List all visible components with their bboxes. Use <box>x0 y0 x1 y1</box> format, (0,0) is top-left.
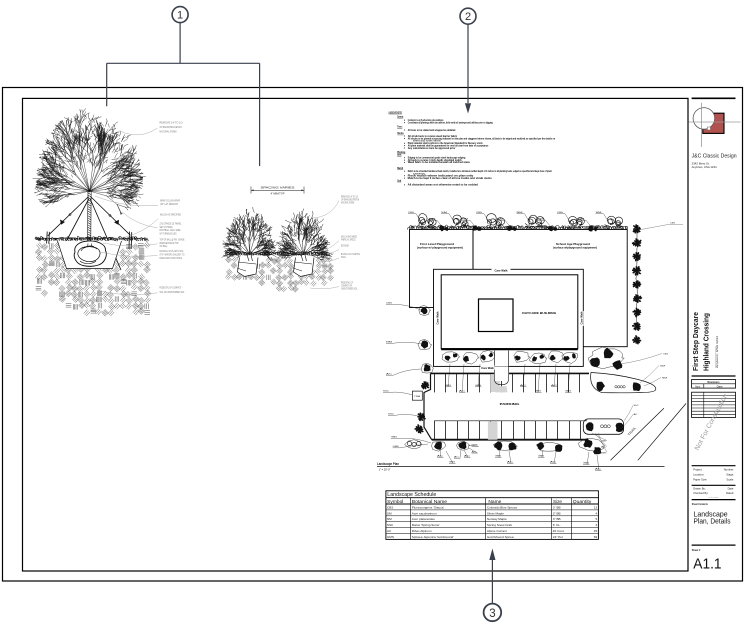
svg-text:6' CL.: 6' CL. <box>553 523 561 527</box>
svg-text:5: 5 <box>595 517 597 521</box>
svg-text:#4 Cont.: #4 Cont. <box>553 529 565 533</box>
svg-text:REMOVE 1/4 TO 1/3: REMOVE 1/4 TO 1/3 <box>160 122 184 125</box>
svg-text:Malus 'Spring Snow': Malus 'Spring Snow' <box>412 523 440 527</box>
svg-text:Name: Name <box>488 499 502 504</box>
svg-text:3: 3 <box>595 523 597 527</box>
svg-text:Mulch to be shredded hardwood: Mulch to be shredded hardwood bark mulch… <box>408 170 552 173</box>
svg-text:Spring Snow Crab: Spring Snow Crab <box>487 523 512 527</box>
svg-text:NM: NM <box>578 219 584 221</box>
svg-text:SOIL OR UNDISTURBED SOIL: SOIL OR UNDISTURBED SOIL <box>160 291 185 294</box>
svg-text:Care Walk: Care Walk <box>580 311 584 325</box>
svg-text:SPACING VARIES: SPACING VARIES <box>261 186 295 190</box>
svg-text:Mulch to be kept 3 inches clea: Mulch to be kept 3 inches clear of all t… <box>408 177 493 180</box>
svg-text:Plan, Details: Plan, Details <box>694 517 731 526</box>
svg-text:Mulch: Mulch <box>397 166 403 170</box>
svg-text:TRA: TRA <box>414 395 421 398</box>
svg-text:Revisions: Revisions <box>708 380 720 384</box>
svg-text:Care Walk: Care Walk <box>495 270 509 273</box>
svg-text:SM: SM <box>660 366 665 368</box>
svg-text:Care Walk: Care Walk <box>436 311 440 325</box>
svg-text:Symbol: Symbol <box>387 499 403 504</box>
svg-text:GMS: GMS <box>475 385 482 387</box>
svg-text:Acer saccharinum: Acer saccharinum <box>412 511 437 515</box>
svg-text:Silver Maple: Silver Maple <box>487 511 504 515</box>
svg-text:CBS: CBS <box>538 219 545 221</box>
svg-text:Location:: Location: <box>693 473 704 477</box>
svg-text:School Age Playground: School Age Playground <box>556 243 591 246</box>
svg-text:AC: AC <box>550 461 557 464</box>
svg-text:69: 69 <box>594 535 598 539</box>
svg-text:LANDSCAPE NOTES: LANDSCAPE NOTES <box>389 110 402 114</box>
svg-text:Checked By:: Checked By: <box>693 491 708 495</box>
svg-text:NATURAL FORM: NATURAL FORM <box>341 202 354 205</box>
svg-text:Project:: Project: <box>693 468 702 472</box>
svg-text:Paper Size:: Paper Size: <box>693 477 707 481</box>
svg-text:(30° LAT. BRANCH: (30° LAT. BRANCH <box>160 203 178 206</box>
svg-text:3: 3 <box>489 608 495 620</box>
svg-text:Spiraea Japonica 'Goldmound': Spiraea Japonica 'Goldmound' <box>412 535 454 539</box>
svg-text:J&C Classic Design: J&C Classic Design <box>692 154 737 160</box>
svg-text:Landscape Schedule: Landscape Schedule <box>387 492 436 498</box>
svg-text:SOIL: SOIL <box>341 256 347 259</box>
svg-text:All disturbed areas not otherw: All disturbed areas not otherwise noted … <box>408 184 479 187</box>
svg-text:Highland Crossing: Highland Crossing <box>702 313 711 371</box>
svg-text:AC: AC <box>472 450 478 453</box>
svg-text:Weed fabric to be installed be: Weed fabric to be installed beneath all … <box>408 161 471 164</box>
svg-text:GMS: GMS <box>445 385 452 387</box>
svg-text:AC: AC <box>464 455 471 458</box>
svg-text:GMS: GMS <box>495 456 502 458</box>
svg-text:W/ TURNBUCKLES: W/ TURNBUCKLES <box>160 232 177 235</box>
svg-text:Colorado Blue Spruce: Colorado Blue Spruce <box>487 505 518 509</box>
svg-text:DRAIN AWAY FROM TRUNK.: DRAIN AWAY FROM TRUNK. <box>160 257 183 260</box>
svg-text:SM: SM <box>441 212 447 214</box>
svg-text:DAYCARE BUILDING: DAYCARE BUILDING <box>522 311 557 315</box>
svg-text:24" Pot: 24" Pot <box>553 535 563 539</box>
svg-text:Date: Date <box>717 385 724 388</box>
svg-text:NATURAL FORM: NATURAL FORM <box>160 130 177 133</box>
svg-text:Number:: Number: <box>724 468 735 472</box>
svg-text:Beds: Beds <box>397 153 402 157</box>
svg-text:GMS: GMS <box>538 456 545 458</box>
svg-text:Acer platanoides: Acer platanoides <box>412 517 435 521</box>
svg-text:Num: Num <box>695 385 700 388</box>
svg-text:Size: Size <box>553 499 563 504</box>
svg-text:Botanical Name: Botanical Name <box>412 499 448 504</box>
svg-text:SSC: SSC <box>634 405 639 407</box>
svg-text:45: 45 <box>594 529 598 533</box>
svg-text:NM: NM <box>517 212 523 214</box>
svg-text:SM: SM <box>387 511 392 515</box>
svg-text:PARKING: PARKING <box>500 402 521 406</box>
svg-text:Norway Maple: Norway Maple <box>487 517 507 521</box>
svg-text:AC: AC <box>459 390 466 393</box>
svg-text:CBS: CBS <box>557 212 564 214</box>
svg-text:1: 1 <box>177 10 183 22</box>
svg-text:First Step Daycare: First Step Daycare <box>691 312 700 371</box>
svg-text:SM: SM <box>497 219 503 221</box>
svg-text:Date:: Date: <box>728 486 735 490</box>
svg-text:AC: AC <box>595 468 602 471</box>
svg-text:NM: NM <box>462 219 468 221</box>
svg-text:OF BRANCHES-RETAIN: OF BRANCHES-RETAIN <box>160 126 182 129</box>
svg-text:CBS: CBS <box>408 212 415 214</box>
svg-text:GMS: GMS <box>601 453 607 455</box>
svg-text:A1.1: A1.1 <box>693 557 721 573</box>
svg-text:(surface w/playground equipmen: (surface w/playground equipment) <box>553 246 597 249</box>
svg-text:3" BB: 3" BB <box>553 517 561 521</box>
svg-text:AC: AC <box>634 413 639 416</box>
svg-text:GMS: GMS <box>583 463 590 465</box>
svg-text:All trees to be staked and wra: All trees to be staked and wrapped as de… <box>408 129 456 132</box>
svg-text:GMS: GMS <box>535 391 542 393</box>
svg-text:Sheet Contents: Sheet Contents <box>692 502 708 506</box>
svg-text:Scale:: Scale: <box>727 477 735 481</box>
svg-text:2: 2 <box>465 11 471 23</box>
svg-text:Anytown, USA 1234: Anytown, USA 1234 <box>715 335 719 368</box>
svg-text:4: 4 <box>595 511 597 515</box>
svg-text:Quantity: Quantity <box>573 499 593 504</box>
svg-text:Landscape Plan: Landscape Plan <box>377 462 399 466</box>
svg-text:Drawn By:: Drawn By: <box>693 486 706 490</box>
svg-text:WRAP COLLAR WRAP: WRAP COLLAR WRAP <box>160 200 180 203</box>
svg-text:Stage:: Stage: <box>726 473 734 477</box>
svg-text:3" BB: 3" BB <box>553 505 561 509</box>
svg-text:AC: AC <box>437 455 444 458</box>
svg-text:Sod: Sod <box>397 178 401 182</box>
svg-text:Sheet #: Sheet # <box>692 548 701 552</box>
svg-text:MULCH AS SPECIFIED: MULCH AS SPECIFIED <box>160 214 181 217</box>
svg-text:Any substitutions must be appr: Any substitutions must be approved prior <box>408 147 456 150</box>
svg-text:Anytown, USA 1234: Anytown, USA 1234 <box>692 165 718 169</box>
svg-text:Picea pungens 'Glauca': Picea pungens 'Glauca' <box>412 505 445 509</box>
svg-text:AC: AC <box>386 373 393 376</box>
svg-text:AC: AC <box>387 529 392 533</box>
svg-text:FABRIC AS SPECD.: FABRIC AS SPECD. <box>341 239 356 242</box>
svg-text:Alpine Currant: Alpine Currant <box>487 529 507 533</box>
svg-text:13: 13 <box>594 505 598 509</box>
svg-text:OF BALL: OF BALL <box>160 245 168 248</box>
svg-text:General: General <box>397 114 403 118</box>
svg-text:Shrubs: Shrubs <box>397 131 404 135</box>
svg-text:NM: NM <box>662 378 667 380</box>
svg-text:NM: NM <box>387 517 392 521</box>
svg-text:AC: AC <box>551 384 558 387</box>
svg-text:SSC: SSC <box>387 523 394 527</box>
svg-text:AT 6" WATERG SAUCER, TO: AT 6" WATERG SAUCER, TO <box>160 254 185 257</box>
svg-text:Coordinate all plantings with: Coordinate all plantings with site utili… <box>408 121 493 124</box>
svg-text:Care Walk: Care Walk <box>481 368 494 370</box>
svg-text:GMS: GMS <box>387 535 394 539</box>
svg-text:Dated:: Dated: <box>726 491 734 495</box>
svg-text:1" = 20'-0": 1" = 20'-0" <box>379 468 391 471</box>
svg-text:(surface w/ playground equipme: (surface w/ playground equipment) <box>417 246 463 249</box>
svg-text:PEDESTAL OF COMPACT -: PEDESTAL OF COMPACT - <box>160 287 183 290</box>
svg-text:3" BB: 3" BB <box>553 511 561 515</box>
svg-text:Gold Mound Spirea: Gold Mound Spirea <box>487 535 514 539</box>
svg-text:EDGING: EDGING <box>341 244 349 247</box>
svg-text:SM: SM <box>596 212 602 214</box>
svg-text:CBS: CBS <box>670 222 676 224</box>
svg-text:-- -- ------: -- -- ------ <box>708 496 718 499</box>
svg-text:CBS: CBS <box>387 505 393 509</box>
svg-text:4' MIN/TYP: 4' MIN/TYP <box>271 192 285 196</box>
svg-text:UNDISTURBED SOIL.: UNDISTURBED SOIL. <box>341 288 358 291</box>
svg-text:CBS: CBS <box>663 354 669 356</box>
svg-text:BACKFILL W/ PLANTG SOIL: BACKFILL W/ PLANTG SOIL <box>160 250 184 253</box>
svg-text:Ribes Alpinum: Ribes Alpinum <box>412 529 432 533</box>
svg-text:CBS: CBS <box>476 212 483 214</box>
svg-text:AC: AC <box>454 456 460 459</box>
svg-text:Trees: Trees <box>397 125 403 129</box>
svg-text:SM: SM <box>429 219 435 221</box>
svg-text:AC: AC <box>507 461 514 464</box>
svg-text:First Level Playground: First Level Playground <box>420 243 455 246</box>
